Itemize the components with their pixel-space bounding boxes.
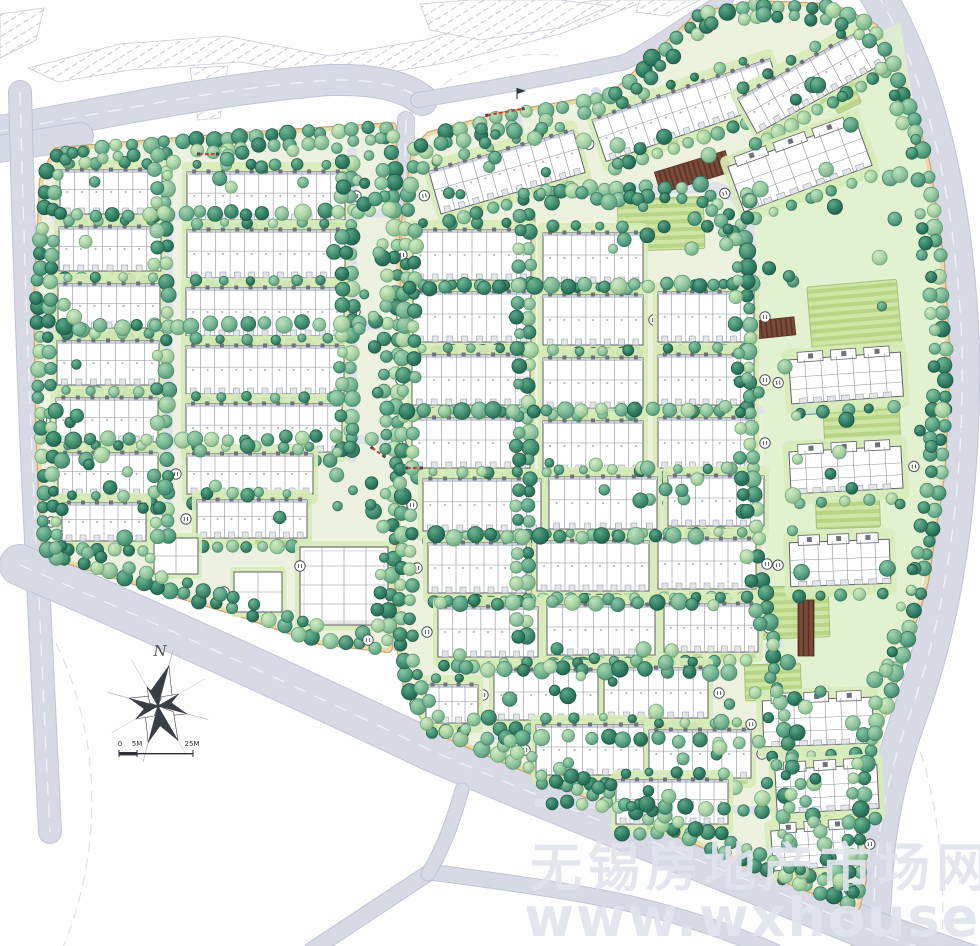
tree (563, 758, 573, 768)
tree (794, 564, 810, 580)
tree (735, 423, 747, 435)
tree (634, 143, 646, 155)
tree (81, 547, 93, 559)
tree (377, 520, 390, 533)
tree (526, 278, 543, 295)
tree (736, 2, 749, 15)
tree (792, 411, 801, 420)
tree (384, 145, 398, 159)
tree (935, 306, 949, 320)
tree (548, 345, 559, 356)
tree (574, 404, 588, 418)
building-number-badge (422, 627, 432, 637)
tree (523, 472, 537, 486)
tree (72, 360, 82, 370)
tree (140, 566, 154, 580)
tree (523, 762, 534, 773)
tree (896, 117, 909, 130)
tree (792, 454, 802, 464)
tree (879, 560, 895, 576)
tree (492, 280, 506, 294)
tree (467, 713, 480, 726)
tree (404, 545, 416, 557)
tree (780, 655, 795, 670)
tree (554, 530, 567, 543)
tree (752, 735, 765, 748)
watermark-url: www.wxhouse.co (524, 886, 980, 946)
tree (79, 235, 92, 248)
building-number-badge (181, 514, 191, 524)
tree (939, 342, 953, 356)
tree (875, 62, 888, 75)
tree (520, 105, 532, 117)
tree (402, 204, 415, 217)
scale-bar: 0 5M 25M (118, 740, 200, 748)
tree (481, 710, 496, 725)
tree (408, 335, 421, 348)
tree (47, 186, 61, 200)
tree (576, 798, 588, 810)
tree (576, 133, 592, 149)
tree (676, 182, 687, 193)
tree (545, 195, 560, 210)
tree (86, 386, 95, 395)
tree (394, 488, 411, 505)
tree (685, 242, 699, 256)
tree (102, 563, 118, 579)
tree (512, 630, 525, 643)
tree (217, 393, 226, 402)
tree (310, 619, 324, 633)
tree (313, 318, 326, 331)
tree (745, 407, 757, 419)
tree (439, 660, 450, 671)
tree (509, 439, 522, 452)
tree (918, 502, 930, 514)
tree (719, 4, 736, 21)
tree (393, 628, 407, 642)
tree (532, 528, 549, 545)
tree (368, 341, 381, 354)
tree (927, 204, 941, 218)
tree (739, 243, 756, 260)
tree (571, 221, 581, 231)
tree (659, 483, 672, 496)
tree (579, 466, 587, 474)
tree (496, 344, 505, 353)
tree (525, 259, 537, 271)
tree (920, 483, 934, 497)
tree (602, 729, 617, 744)
tree (536, 770, 547, 781)
tree (878, 42, 892, 56)
tree (123, 467, 133, 477)
tree (846, 482, 858, 494)
tree (178, 587, 190, 599)
tree (640, 461, 655, 476)
tree (467, 344, 476, 353)
tree (677, 753, 689, 765)
tree (429, 468, 437, 476)
tree (428, 526, 445, 543)
tree (481, 732, 494, 745)
tree (743, 318, 758, 333)
tree (34, 247, 47, 260)
tree (302, 137, 315, 150)
tree (701, 220, 713, 232)
tree (45, 467, 60, 482)
tree (937, 373, 953, 389)
tree (91, 561, 104, 574)
tree (387, 130, 400, 143)
tree (149, 319, 161, 331)
tree (338, 347, 348, 357)
tree (371, 603, 384, 616)
tree (729, 290, 742, 303)
tree (210, 480, 222, 492)
tree (227, 602, 238, 613)
tree (888, 212, 902, 226)
pergola (798, 600, 814, 656)
tree (511, 548, 523, 560)
tree (800, 796, 812, 808)
tree (541, 713, 552, 724)
tree (589, 653, 600, 664)
tree (225, 181, 237, 193)
tree (744, 332, 757, 345)
tree (615, 403, 628, 416)
tree (923, 288, 937, 302)
tree (62, 386, 71, 395)
tree (834, 589, 847, 602)
tree (368, 311, 379, 322)
tree (658, 655, 673, 670)
tree (699, 802, 714, 817)
tree (825, 3, 840, 18)
tree (663, 344, 673, 354)
tree (592, 781, 605, 794)
tree (414, 681, 428, 695)
tree (280, 430, 293, 443)
tree (645, 768, 653, 776)
tree (744, 303, 755, 314)
tree (382, 317, 394, 329)
tree (649, 530, 661, 542)
tree (138, 503, 148, 513)
tree (798, 700, 812, 714)
tree (693, 767, 705, 779)
tree (491, 130, 501, 140)
tree (761, 777, 772, 788)
tree (693, 176, 709, 192)
tree (123, 545, 134, 556)
tree (708, 600, 719, 611)
tree (542, 468, 551, 477)
tree (294, 204, 311, 221)
tree (365, 500, 376, 511)
tree (240, 438, 255, 453)
tree (595, 403, 607, 415)
tree (432, 710, 444, 722)
tree (375, 569, 385, 579)
tree (255, 161, 268, 174)
tree (510, 341, 524, 355)
tree (678, 799, 694, 815)
tree (503, 734, 516, 747)
tree (784, 802, 795, 813)
tree (783, 270, 794, 281)
tree (143, 207, 158, 222)
tree (222, 435, 234, 447)
tree (151, 529, 166, 544)
tree (536, 188, 545, 197)
tree (269, 159, 281, 171)
tree (547, 220, 559, 232)
tree (489, 151, 502, 164)
tree (45, 362, 57, 374)
tree (42, 345, 56, 359)
tree (406, 579, 420, 593)
tree (323, 333, 333, 343)
tree (557, 402, 574, 419)
tree (113, 151, 123, 161)
tree (254, 487, 264, 497)
tree (207, 146, 220, 159)
tree (440, 725, 454, 739)
building-number-badge (773, 560, 784, 571)
tree (740, 655, 752, 667)
tree (746, 451, 759, 464)
tree (497, 661, 512, 676)
tree (122, 210, 134, 222)
tree (332, 205, 345, 218)
tree (303, 125, 315, 137)
tree (912, 547, 925, 560)
tree (596, 222, 604, 230)
tree (460, 724, 470, 734)
tree (65, 432, 82, 449)
tree (417, 162, 430, 175)
tree (652, 731, 665, 744)
tree (241, 542, 252, 553)
tree (216, 335, 225, 344)
tree (379, 369, 390, 380)
tree (335, 155, 349, 169)
tree (732, 262, 743, 273)
tree (872, 250, 887, 265)
tree (564, 594, 580, 610)
tree (225, 205, 239, 219)
tree (636, 642, 651, 657)
tree (657, 129, 672, 144)
tree (316, 276, 326, 286)
tree (576, 187, 588, 199)
tree (527, 405, 540, 418)
site-plan-canvas: N 0 5M 25M 无锡房地产市场网 www.wxhouse.co (0, 0, 980, 946)
tree (382, 635, 393, 646)
tree (380, 300, 392, 312)
tree (457, 278, 472, 293)
tree (681, 403, 695, 417)
tree (103, 481, 117, 495)
tree (677, 193, 687, 203)
tree (666, 49, 681, 64)
compass: N (152, 642, 167, 660)
tree (208, 206, 223, 221)
tree (48, 403, 63, 418)
tree (592, 103, 605, 116)
tree (375, 177, 388, 190)
tree (275, 207, 289, 221)
tree (380, 415, 392, 427)
tree (724, 699, 735, 710)
tree (242, 334, 253, 345)
building-number-badge (714, 688, 724, 698)
tree (549, 775, 562, 788)
tree (161, 335, 172, 346)
tree (857, 787, 872, 802)
tree (147, 469, 160, 482)
tree (612, 661, 629, 678)
tree (605, 779, 617, 791)
tree (721, 462, 733, 474)
tree (439, 281, 451, 293)
tree (268, 139, 280, 151)
tree (380, 286, 395, 301)
tree (457, 467, 468, 478)
tree (564, 769, 579, 784)
scale-bar-graphic (119, 750, 193, 757)
tree (856, 14, 872, 30)
tree (671, 767, 682, 778)
tree (733, 275, 744, 286)
tree (691, 473, 704, 486)
tree (242, 391, 252, 401)
canal-hatch (0, 8, 44, 58)
tree (756, 7, 771, 22)
tree (810, 773, 821, 784)
tree (194, 445, 207, 458)
tree (680, 718, 690, 728)
tree (643, 786, 654, 797)
tree (407, 630, 419, 642)
tree (381, 429, 392, 440)
tree (633, 493, 648, 508)
tree (123, 433, 135, 445)
tree (227, 540, 239, 552)
tree (373, 247, 385, 259)
tree (561, 279, 576, 294)
tree (808, 816, 820, 828)
tree (454, 403, 471, 420)
tree (89, 177, 100, 188)
tree (501, 531, 514, 544)
tree (515, 225, 526, 236)
tree (408, 224, 422, 238)
tree (792, 590, 805, 603)
tree (576, 671, 586, 681)
tree (854, 817, 870, 833)
tree (745, 194, 756, 205)
tree (406, 654, 419, 667)
tree (295, 315, 310, 330)
tree (770, 685, 783, 698)
building-number-badge (295, 561, 305, 571)
tree (162, 170, 172, 180)
tree (915, 425, 926, 436)
tree (629, 279, 641, 291)
tree (745, 575, 758, 588)
tree (557, 101, 569, 113)
tree (892, 167, 908, 183)
building-number-badge (760, 375, 770, 385)
tree (396, 367, 412, 383)
tree (468, 595, 480, 607)
tree (95, 551, 107, 563)
tree (523, 547, 534, 558)
tree (191, 392, 200, 401)
tree (332, 447, 342, 457)
tree (743, 362, 754, 373)
tree (298, 177, 309, 188)
tree (51, 517, 61, 527)
tree (697, 196, 708, 207)
tree (78, 558, 90, 570)
tree (556, 661, 570, 675)
tree (227, 487, 239, 499)
tree (601, 194, 617, 210)
tree (92, 492, 101, 501)
tree (269, 276, 279, 286)
tree (607, 464, 617, 474)
tree (155, 571, 168, 584)
tree (161, 287, 176, 302)
tree (213, 587, 227, 601)
tree (422, 282, 436, 296)
tree (345, 391, 361, 407)
tree (160, 452, 174, 466)
tree (541, 168, 550, 177)
tree (246, 277, 255, 286)
building-number-badge (363, 635, 373, 645)
tree (268, 219, 277, 228)
tree (220, 152, 234, 166)
tree (150, 416, 165, 431)
tree (852, 758, 864, 770)
tree (219, 276, 228, 285)
tree (380, 443, 391, 454)
tree (334, 362, 346, 374)
tree (423, 695, 436, 708)
tree (744, 438, 756, 450)
tree (926, 466, 938, 478)
tree (700, 404, 713, 417)
tree (935, 402, 951, 418)
tree (323, 634, 338, 649)
tree (340, 246, 353, 259)
tree (869, 696, 883, 710)
tree (204, 432, 219, 447)
tree (375, 133, 386, 144)
tree (706, 205, 718, 217)
tree (166, 155, 180, 169)
tree (816, 591, 826, 601)
tree (890, 102, 904, 116)
tree (741, 591, 753, 603)
building-number-badge (746, 719, 757, 730)
tree (366, 135, 376, 145)
tree (336, 180, 351, 195)
